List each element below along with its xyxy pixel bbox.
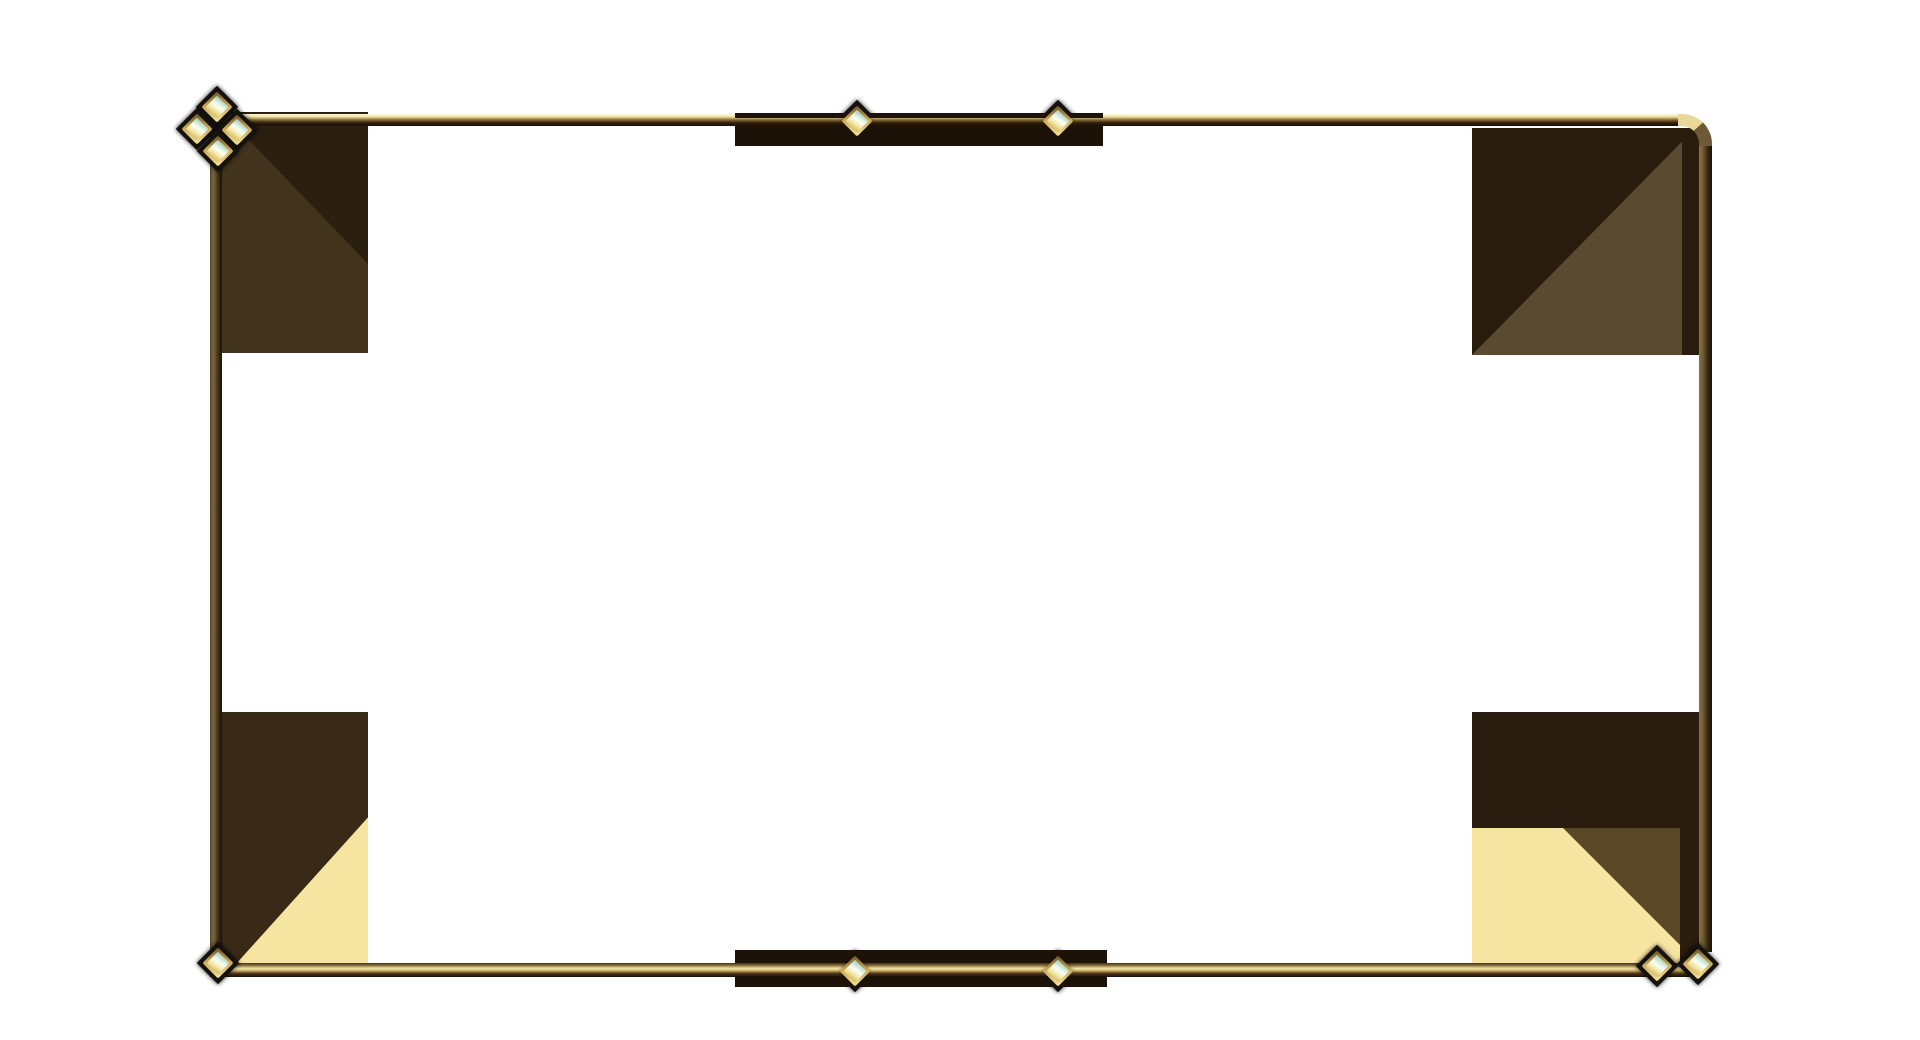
bottom-right-block-brown-triangle xyxy=(1563,828,1680,945)
bottom-left-corner-block xyxy=(210,712,368,963)
decorative-frame-overlay xyxy=(0,0,1920,1040)
top-left-corner-block xyxy=(222,112,368,353)
bottom-left-block-cream-triangle xyxy=(210,712,368,963)
frame-right-border xyxy=(1699,146,1712,952)
bottom-right-corner-block xyxy=(1472,712,1700,963)
bottom-right-block-dark-strip xyxy=(1680,712,1700,963)
top-left-block-dark-triangle xyxy=(222,112,368,353)
bottom-right-block-dark-band xyxy=(1472,712,1700,828)
top-right-block-light-triangle xyxy=(1472,128,1682,355)
frame-top-right-rounded-corner xyxy=(1678,114,1712,148)
top-right-corner-block xyxy=(1472,128,1700,355)
frame-left-border xyxy=(210,126,222,963)
